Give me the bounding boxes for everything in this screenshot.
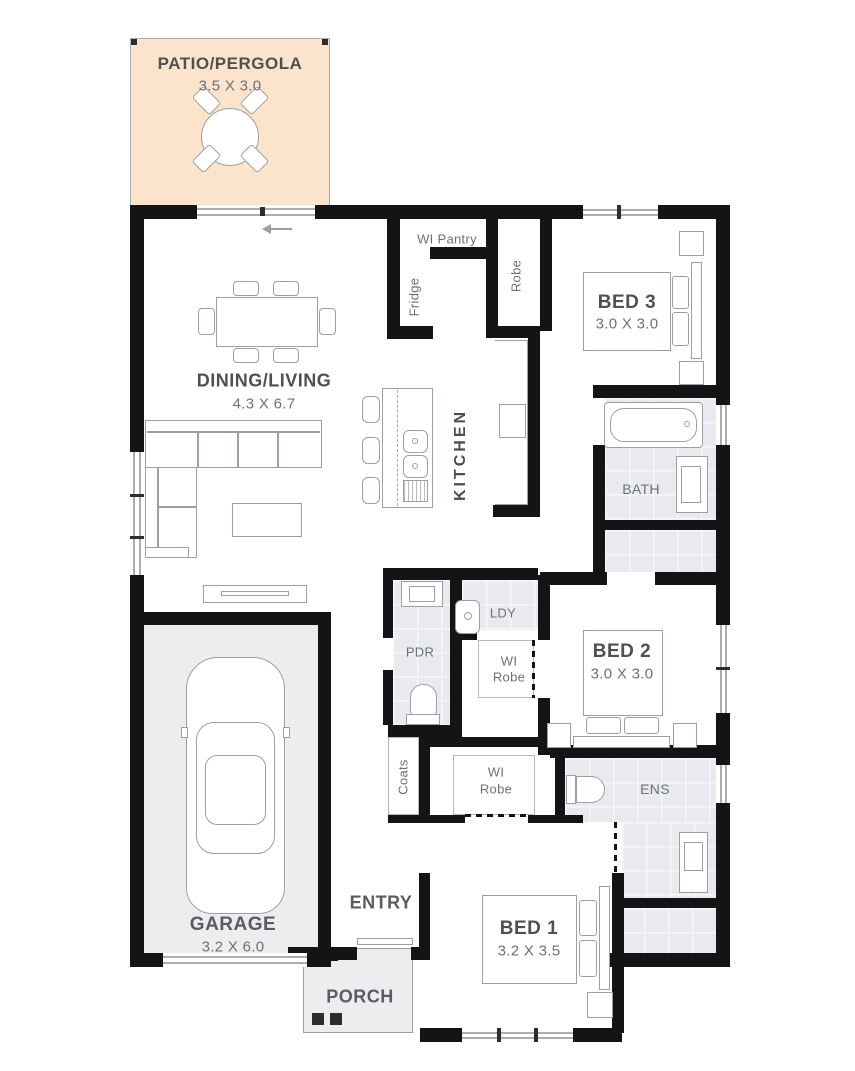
wall [383, 580, 393, 638]
wall [612, 873, 624, 1033]
front-door [357, 938, 413, 945]
car-mirror [181, 727, 188, 738]
ensuite-toilet-tank [566, 775, 576, 804]
wall [538, 575, 550, 640]
tv [221, 591, 289, 596]
wall [618, 898, 716, 908]
bathtub-drain [684, 421, 690, 427]
wall [130, 219, 144, 452]
window [716, 625, 730, 713]
sofa [145, 420, 322, 468]
bath-basin [681, 466, 701, 503]
dining-living-label: DINING/LIVING [197, 371, 332, 392]
dining-table [216, 297, 318, 347]
ensuite-toilet-bowl [576, 776, 605, 803]
bed3-side-table [679, 361, 704, 385]
wi-robe-bed2-label: WI [501, 654, 517, 669]
porch-label: PORCH [326, 987, 394, 1008]
bed1-pillow [579, 940, 597, 977]
door-swing-arrow-icon [270, 228, 292, 230]
coffee-table [232, 503, 302, 537]
patio-post [131, 39, 137, 45]
wall [130, 953, 163, 967]
robe-opening-dashed [465, 814, 528, 817]
bed1-headboard [599, 886, 610, 990]
kitchen-label: KITCHEN [452, 409, 470, 501]
wi-robe-bed1-label: Robe [480, 782, 512, 797]
wall [430, 247, 493, 259]
wi-robe-bed2-label: Robe [493, 670, 525, 685]
bath-lower-floor [605, 530, 716, 572]
window [716, 765, 730, 803]
sofa-cushion-line [197, 432, 199, 467]
sofa-chaise-end [145, 547, 189, 558]
bed3-pillow [672, 312, 689, 346]
ensuite-label: ENS [640, 781, 670, 797]
floor-plan: PATIO/PERGOLA 3.5 X 3.0 DINING/LIVING 4.… [0, 0, 855, 1071]
bath-label: BATH [622, 481, 660, 497]
bed3-dims: 3.0 X 3.0 [596, 316, 659, 333]
bed3-label: BED 3 [598, 292, 656, 314]
sink-tap [412, 438, 418, 444]
wall [540, 219, 552, 331]
wall [383, 670, 393, 725]
bed1-label: BED 1 [500, 918, 558, 940]
wall [130, 612, 331, 625]
dining-chair [233, 281, 259, 296]
robe-opening-dashed [532, 640, 535, 698]
car-mirror [283, 727, 290, 738]
bed2-headboard [573, 736, 670, 748]
dining-chair [319, 308, 336, 335]
powder-label: PDR [406, 645, 434, 660]
wall [388, 725, 455, 737]
sofa-cushion-line [277, 432, 279, 467]
wall [130, 205, 197, 219]
robe-label: Robe [509, 260, 524, 292]
wall [540, 572, 607, 585]
wall [420, 1028, 462, 1042]
garage-label: GARAGE [190, 914, 276, 936]
powder-toilet-bowl [410, 684, 437, 716]
fridge-label: Fridge [407, 278, 422, 317]
cooktop [499, 404, 526, 438]
porch-post [312, 1013, 324, 1025]
powder-toilet-tank [406, 714, 440, 725]
dining-chair [273, 348, 299, 363]
sofa-cushion-line [158, 506, 197, 508]
bed2-pillow [586, 717, 621, 734]
bed2-dims: 3.0 X 3.0 [591, 666, 654, 683]
window [716, 405, 730, 445]
wi-pantry-label: WI Pantry [417, 232, 477, 247]
bed3-pillow [672, 276, 689, 309]
wall [528, 815, 567, 823]
bed1-side-table [587, 992, 613, 1018]
ensuite-shower-floor [620, 908, 716, 953]
car-roof [205, 755, 266, 825]
sofa-cushion-line [157, 468, 159, 547]
wall [315, 205, 583, 219]
wall [318, 612, 331, 967]
wall [605, 520, 716, 530]
dining-living-dims: 4.3 X 6.7 [233, 396, 296, 413]
patio-label: PATIO/PERGOLA [158, 54, 303, 74]
wall [430, 737, 566, 747]
wall [716, 219, 730, 405]
wall [608, 953, 730, 967]
wall [331, 947, 357, 960]
wall [411, 947, 430, 960]
porch-post [330, 1013, 342, 1025]
wall [528, 331, 540, 515]
wall [486, 219, 498, 329]
entry-label: ENTRY [350, 893, 413, 914]
wall [658, 205, 730, 219]
wall [716, 803, 730, 967]
wall [383, 568, 538, 580]
sink-drainer [403, 480, 428, 502]
bed3-headboard [691, 262, 702, 359]
stool [362, 477, 380, 504]
coats-label: Coats [396, 759, 411, 794]
patio-post [322, 39, 328, 45]
wall [593, 385, 730, 398]
island-overhang-line [397, 390, 398, 506]
sofa-cushion-line [147, 431, 320, 433]
window [130, 452, 144, 575]
wall [388, 815, 465, 823]
wall [493, 505, 540, 517]
dining-chair [233, 348, 259, 363]
garage-dims: 3.2 X 6.0 [202, 939, 265, 956]
dining-chair [198, 308, 215, 335]
wall [655, 572, 730, 585]
window [462, 1028, 573, 1042]
bed3-side-table [679, 231, 704, 256]
sliding-door [197, 205, 315, 219]
bed2-side-table [547, 723, 571, 748]
sofa-cushion-line [237, 432, 239, 467]
wall [419, 873, 430, 947]
laundry-label: LDY [490, 606, 516, 621]
sink-tap [412, 463, 418, 469]
wall [716, 445, 730, 625]
patio-dims: 3.5 X 3.0 [199, 78, 262, 95]
dining-chair [273, 281, 299, 296]
stool [362, 396, 380, 423]
wall [387, 219, 400, 326]
ensuite-basin [684, 842, 703, 871]
powder-basin [409, 586, 435, 602]
door-swing-arrow-icon [262, 224, 271, 234]
wall [387, 326, 433, 339]
wall [419, 737, 430, 823]
bed2-side-table [673, 723, 697, 748]
laundry-tub-drain [464, 612, 472, 620]
wi-robe-bed1-label: WI [488, 765, 504, 780]
wall [130, 575, 144, 967]
bed1-pillow [579, 900, 597, 936]
ensuite-opening-dashed [614, 822, 617, 876]
wall [593, 445, 605, 575]
bed2-pillow [624, 717, 659, 734]
bed1-dims: 3.2 X 3.5 [498, 943, 561, 960]
wall [716, 713, 730, 765]
bed2-label: BED 2 [593, 641, 651, 663]
stool [362, 437, 380, 464]
window [583, 205, 658, 219]
wall [555, 758, 565, 822]
